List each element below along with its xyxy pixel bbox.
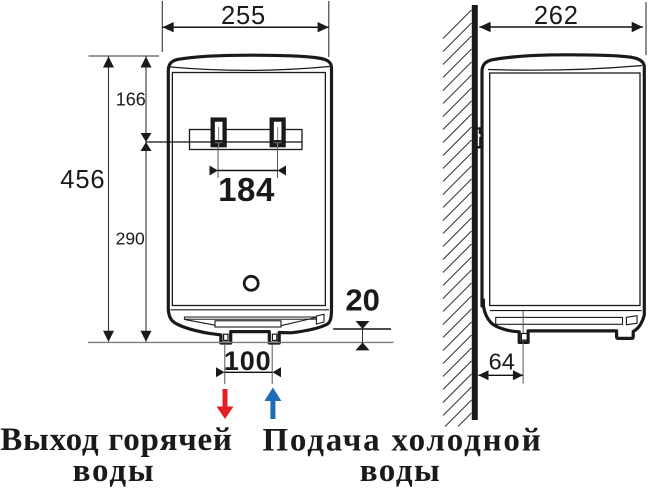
svg-text:166: 166 xyxy=(116,90,146,110)
svg-text:воды: воды xyxy=(73,453,156,489)
svg-text:воды: воды xyxy=(360,453,442,489)
svg-text:184: 184 xyxy=(218,171,275,208)
svg-text:456: 456 xyxy=(60,166,105,194)
svg-text:290: 290 xyxy=(116,229,145,249)
svg-text:64: 64 xyxy=(489,349,515,375)
svg-text:20: 20 xyxy=(345,283,379,318)
svg-text:100: 100 xyxy=(224,346,272,376)
svg-text:262: 262 xyxy=(534,2,579,30)
svg-text:255: 255 xyxy=(221,2,266,30)
